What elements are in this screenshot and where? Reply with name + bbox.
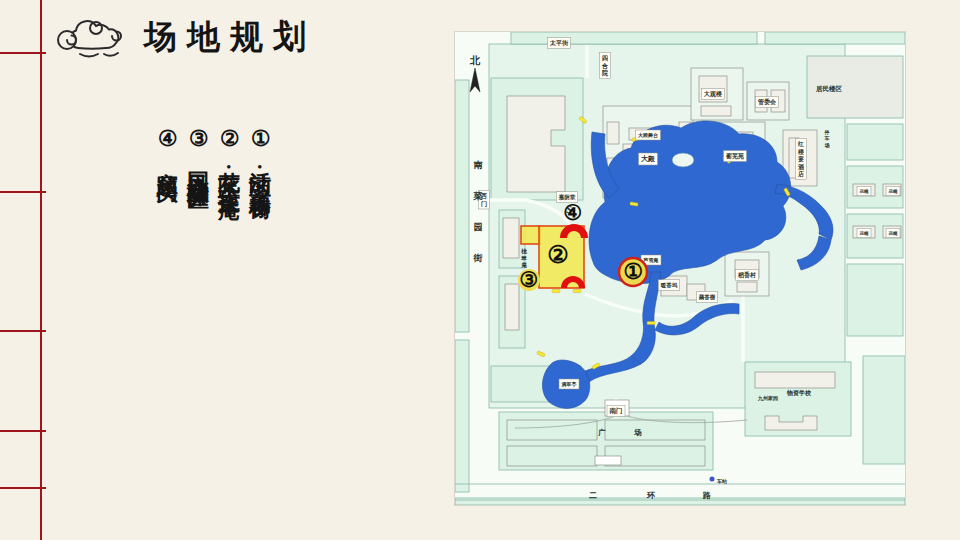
- svg-text:红楼宴酒店: 红楼宴酒店: [797, 141, 805, 178]
- map-label: 红楼宴酒店: [796, 139, 807, 180]
- slide: { "slide": { "title": "场地规划", "legend": …: [0, 0, 960, 540]
- svg-text:管委会: 管委会: [757, 98, 777, 106]
- svg-text:停车场: 停车场: [824, 129, 830, 149]
- map-label: 管委会: [756, 97, 779, 108]
- map-label: 花棚: [886, 228, 900, 238]
- map-marker: ④: [564, 201, 583, 225]
- svg-text:太平街: 太平街: [549, 39, 569, 47]
- map-label: 环: [646, 491, 656, 500]
- map-label: 蘅芜苑: [724, 151, 747, 162]
- legend-item-text: 活动区·藕香榭: [248, 154, 273, 182]
- map-label: 居民楼区: [815, 85, 843, 93]
- svg-text:滴翠亭: 滴翠亭: [561, 381, 577, 388]
- svg-text:路: 路: [702, 491, 711, 500]
- svg-text:嘉荫堂: 嘉荫堂: [558, 194, 576, 201]
- map-label: 大殿舞台: [636, 130, 661, 140]
- ruling-horizontal-line: [0, 52, 46, 54]
- legend-item: ④穿越门头: [152, 126, 183, 376]
- svg-text:栊翠庵: 栊翠庵: [520, 248, 527, 269]
- bridge-mark: [552, 289, 560, 292]
- legend-item-text: 穿越门头: [155, 154, 180, 166]
- svg-text:居民楼区: 居民楼区: [815, 85, 843, 93]
- park-map: 北太平街四合院居民楼区大观楼管委会蘅芜苑红楼宴酒店停车场大殿舞台大殿嘉荫堂S西门…: [455, 32, 905, 505]
- legend-item-text: 花车区·拢翠庵: [217, 154, 242, 182]
- svg-text:四合院: 四合院: [601, 55, 609, 77]
- legend-item: ②花车区·拢翠庵: [214, 126, 245, 376]
- map-label: 路: [702, 491, 711, 500]
- map-label: 九州家园: [757, 395, 778, 402]
- svg-text:②: ②: [547, 242, 569, 268]
- map-label: 二: [589, 491, 597, 500]
- svg-text:南门: 南门: [609, 407, 623, 415]
- page-title: 场地规划: [144, 15, 316, 60]
- legend-item: ①活动区·藕香榭: [245, 126, 276, 376]
- map-label: 花棚: [857, 228, 871, 238]
- map-marker: ②: [547, 242, 569, 268]
- legend-item-text: 国风游戏体验区: [186, 154, 211, 175]
- svg-text:九州家园: 九州家园: [757, 395, 778, 402]
- svg-text:广: 广: [597, 428, 606, 437]
- map-label: 停车场: [824, 129, 830, 149]
- svg-text:物资学校: 物资学校: [786, 389, 812, 397]
- svg-text:③: ③: [520, 268, 539, 292]
- map-label: 北: [469, 55, 481, 66]
- legend-item-number: ④: [155, 126, 180, 154]
- svg-text:大观楼: 大观楼: [703, 90, 723, 98]
- svg-text:稻香村: 稻香村: [737, 271, 756, 279]
- map-label: 南门: [607, 405, 625, 417]
- map-label: 广: [597, 428, 606, 437]
- map-label: 花棚: [857, 186, 871, 196]
- ruling-horizontal-line: [0, 191, 46, 193]
- svg-text:二: 二: [589, 491, 597, 500]
- svg-text:场: 场: [633, 428, 642, 437]
- ruling-vertical-line: [40, 0, 42, 540]
- svg-text:蘅芜苑: 蘅芜苑: [725, 152, 744, 160]
- map-label: 花棚: [886, 186, 900, 196]
- map-label: 栊翠庵: [520, 248, 527, 269]
- svg-text:环: 环: [646, 491, 656, 500]
- park-map-svg: 北太平街四合院居民楼区大观楼管委会蘅芜苑红楼宴酒店停车场大殿舞台大殿嘉荫堂S西门…: [455, 32, 905, 505]
- ruling-horizontal-line: [0, 330, 46, 332]
- map-label: 场: [633, 428, 642, 437]
- svg-text:大殿舞台: 大殿舞台: [638, 132, 658, 139]
- bus-stop-icon: [710, 477, 715, 482]
- map-label: 大殿: [639, 153, 658, 165]
- ruling-horizontal-line: [0, 430, 46, 432]
- map-label: 稻香村: [736, 270, 759, 281]
- map-marker: ③: [518, 268, 540, 292]
- highlight-zone: [521, 226, 540, 244]
- svg-text:车站: 车站: [716, 478, 727, 485]
- legend-item-number: ②: [217, 126, 242, 154]
- map-label: 物资学校: [786, 389, 812, 397]
- map-label: 暖香坞: [658, 280, 680, 291]
- bridge-mark: [647, 321, 655, 324]
- auspicious-cloud-icon: [54, 12, 136, 62]
- legend-item: ③国风游戏体验区: [183, 126, 214, 376]
- legend: ①活动区·藕香榭 ②花车区·拢翠庵 ③国风游戏体验区 ④穿越门头: [152, 126, 276, 376]
- svg-text:暖香坞: 暖香坞: [661, 282, 678, 289]
- svg-text:北: 北: [469, 55, 481, 66]
- svg-text:①: ①: [623, 259, 643, 284]
- map-label: 大观楼: [702, 89, 725, 100]
- svg-text:大殿: 大殿: [641, 155, 655, 163]
- map-label: 四合院: [600, 53, 611, 79]
- map-label: 滴翠亭: [559, 379, 579, 389]
- legend-item-number: ①: [248, 126, 273, 154]
- map-marker: ①: [619, 258, 647, 286]
- svg-text:藕香榭: 藕香榭: [698, 294, 716, 301]
- header: 场地规划: [54, 12, 316, 62]
- map-label: 藕香榭: [696, 292, 718, 303]
- legend-item-number: ③: [186, 126, 211, 154]
- map-label: 太平街: [548, 38, 571, 49]
- svg-text:④: ④: [564, 201, 583, 225]
- bridge-mark: [573, 289, 581, 292]
- ruling-horizontal-line: [0, 487, 46, 489]
- map-label: 车站: [716, 478, 727, 485]
